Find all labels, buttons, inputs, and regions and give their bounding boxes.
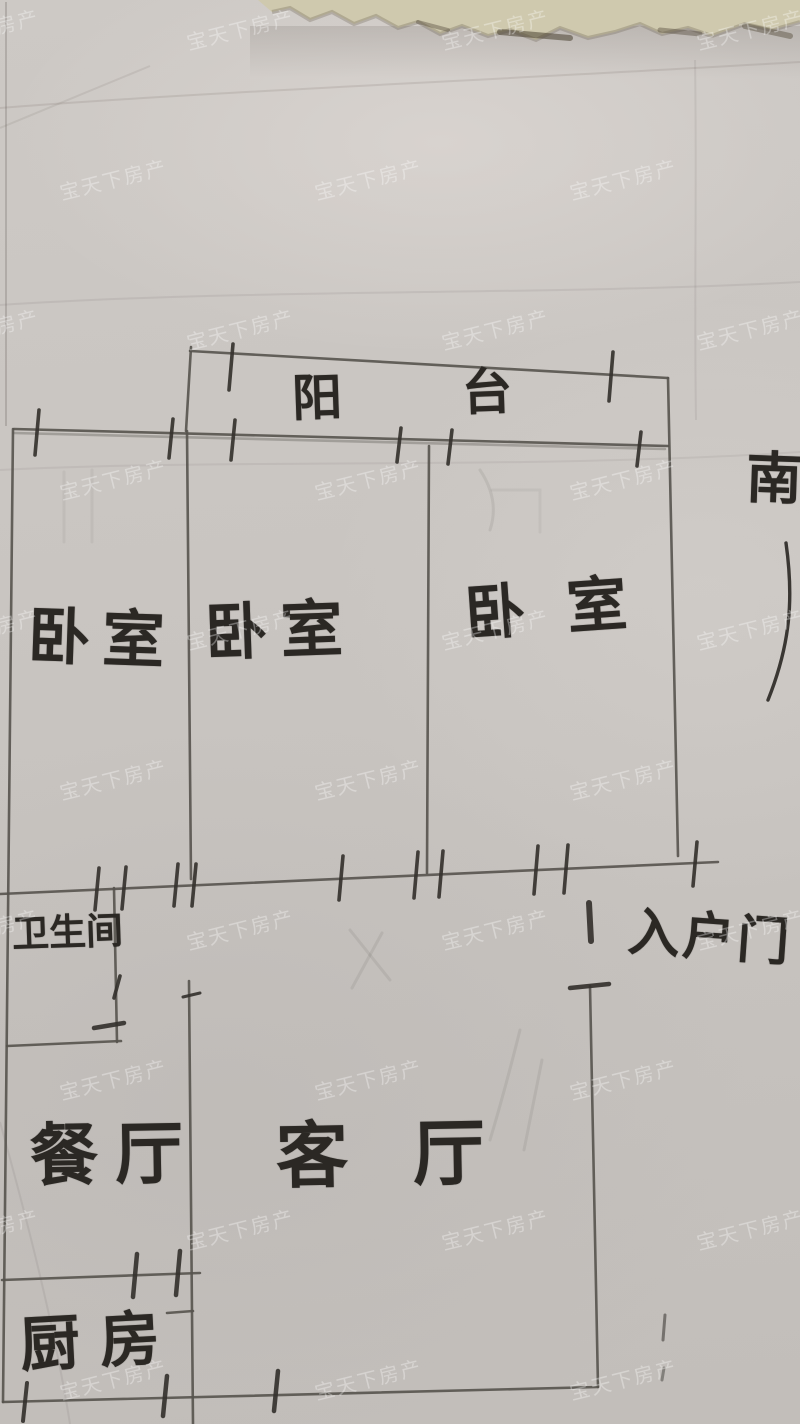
- walls: [0, 347, 718, 1424]
- pencil-smudges: [64, 470, 542, 1150]
- entry-door-label: 入户门: [626, 906, 793, 969]
- room-label-kitchen: 厨房: [19, 1308, 182, 1376]
- floorplan-drawing: [0, 0, 800, 1424]
- room-label-bathroom: 卫生间: [11, 912, 123, 953]
- floorplan-photo: 阳台 卧室 卧室 卧室 卫生间 入户门 餐厅 客厅 厨房 南 宝天下房产宝天下房…: [0, 0, 800, 1424]
- room-label-bedroom-right: 卧室: [463, 571, 671, 645]
- living-room-left-wall: [189, 981, 193, 1424]
- room-label-bedroom-left: 卧室: [27, 605, 178, 672]
- room-label-balcony: 阳台: [291, 362, 633, 424]
- entry-door-jamb-bottom: [570, 984, 609, 988]
- living-room-right-wall: [590, 986, 598, 1387]
- bottom-outer-wall: [3, 1387, 598, 1402]
- bedroom-left-divider-wall: [187, 431, 191, 879]
- entry-door-jamb-top: [589, 903, 591, 941]
- bathroom-bottom-wall: [7, 1041, 121, 1046]
- south-direction-line: [768, 543, 790, 700]
- south-main-wall-double-stroke: [14, 433, 665, 449]
- room-label-bedroom-middle: 卧室: [204, 597, 357, 664]
- compass-south-label: 南: [745, 451, 800, 509]
- bedroom-right-divider-wall: [427, 446, 429, 873]
- room-label-living: 客厅: [275, 1116, 550, 1193]
- kitchen-door-jamb-left: [133, 1254, 137, 1297]
- kitchen-door-jamb-right: [176, 1251, 180, 1295]
- room-label-dining: 餐厅: [29, 1121, 200, 1192]
- kitchen-top-wall: [2, 1273, 200, 1280]
- balcony-left-wall: [186, 347, 191, 431]
- south-main-wall: [14, 429, 668, 446]
- bathroom-door-mark: [94, 1023, 124, 1028]
- paper-creases: [0, 2, 800, 1424]
- middle-wall: [0, 862, 718, 894]
